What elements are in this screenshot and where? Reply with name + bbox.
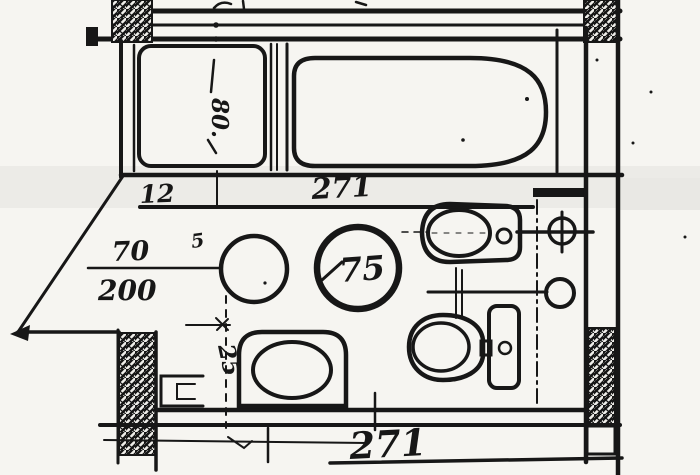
door-dimensions: 70 200 5: [88, 229, 221, 307]
dim-shower-label: 80.: [206, 97, 233, 138]
wall-end-cap: [86, 27, 98, 46]
toilet-cistern: [489, 306, 519, 388]
toilet: [409, 306, 519, 388]
dim-round-basin: 75: [338, 248, 387, 290]
duct-cap: [533, 188, 585, 197]
shower-tray: 80.: [139, 44, 287, 170]
bidet-tap: [497, 229, 511, 243]
dim-width-top: 271: [310, 169, 373, 206]
dim-width-bottom: 271: [347, 420, 427, 468]
valve-symbol-bottom: [428, 279, 574, 307]
hatched-pier-bottom-left: [119, 333, 156, 455]
valve-symbol-top: [517, 212, 593, 252]
center-mark: [186, 318, 230, 330]
cut-off-marks: [214, 1, 366, 9]
scanned-floor-plan: 80. 12 271 70 200 5 75: [0, 0, 700, 475]
paper-artifacts: [0, 1, 700, 285]
sink-basin: [221, 236, 287, 302]
dim-wall-offset: 12: [139, 179, 175, 209]
wall-block-bottom-right: [587, 426, 615, 454]
washbasin: [239, 332, 346, 406]
dim-gap: 5: [190, 229, 206, 253]
round-basin-75: 75: [317, 227, 428, 309]
bidet: [422, 204, 520, 262]
walls: [86, 0, 622, 475]
bathtub: [294, 58, 546, 166]
hatched-pier-right: [588, 328, 615, 425]
hatched-pier-top-left: [112, 0, 152, 42]
dim-side-fixture: 25: [212, 341, 245, 379]
dim-room-depth: 200: [97, 274, 157, 307]
dim-door-width: 70: [111, 236, 150, 268]
hatched-pier-top-right: [584, 0, 619, 42]
floor-plan-drawing: 80. 12 271 70 200 5 75: [0, 0, 700, 475]
